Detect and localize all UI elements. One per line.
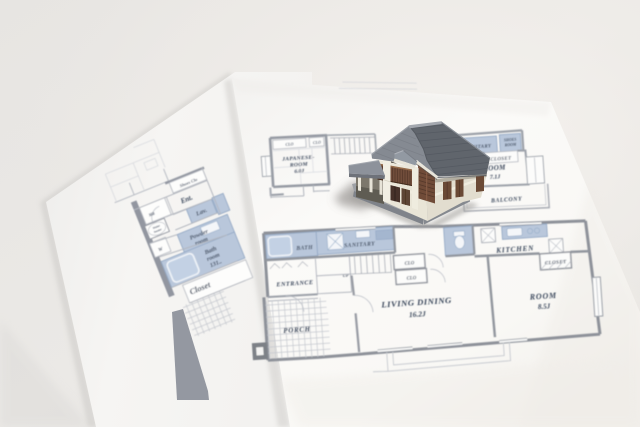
svg-text:16.2J: 16.2J [409,309,427,319]
svg-text:ROOM: ROOM [505,143,517,148]
svg-text:UP: UP [342,273,349,278]
svg-text:ROOM: ROOM [528,291,557,302]
svg-text:7.1J: 7.1J [490,174,502,181]
svg-text:CLO: CLO [406,276,416,282]
svg-text:8.5J: 8.5J [538,302,551,311]
svg-text:CLO: CLO [313,140,321,146]
svg-text:BATH: BATH [295,245,313,252]
svg-text:SHOES: SHOES [504,138,517,143]
svg-text:6.0J: 6.0J [294,168,304,175]
svg-text:CLO: CLO [404,261,414,267]
svg-text:CLO: CLO [285,141,293,147]
